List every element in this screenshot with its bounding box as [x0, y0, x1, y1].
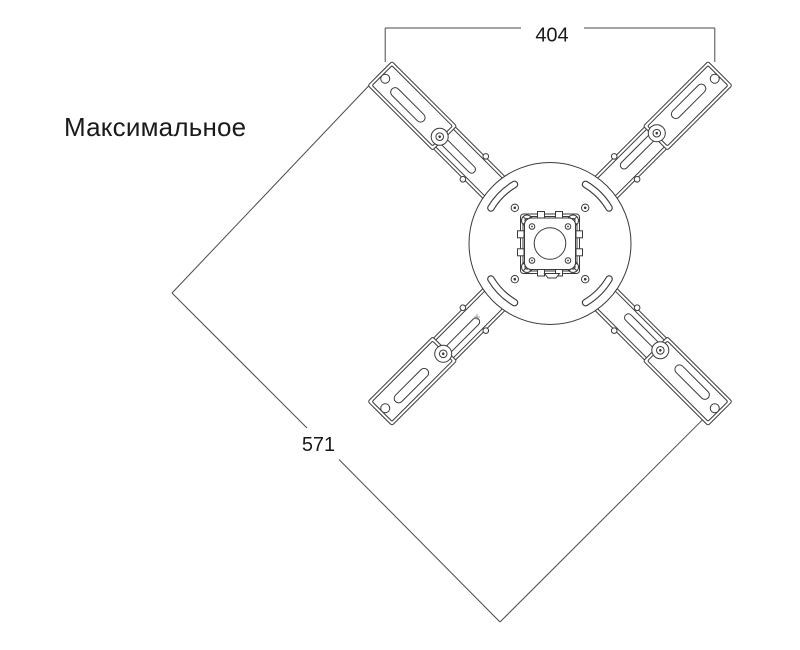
plate-screw-top-left: [511, 204, 518, 211]
dimension-404: 404: [385, 25, 715, 63]
dim-571-extension-left: [172, 86, 369, 294]
mount-technical-drawing: 571 404: [0, 0, 800, 650]
dim-571-value: 571: [302, 434, 335, 456]
interface-plate: [518, 212, 583, 279]
dim-571-line-upper: [172, 293, 307, 428]
dim-571-line-lower: [339, 460, 500, 623]
plate-screw-top-right: [582, 204, 589, 211]
page: Максимальное: [0, 0, 800, 650]
hub: [469, 163, 631, 325]
dim-404-value: 404: [535, 25, 568, 47]
plate-screw-bottom-right: [582, 276, 589, 283]
plate-screw-bottom-left: [511, 276, 518, 283]
dim-571-extension-right: [500, 412, 711, 622]
center-hole: [534, 228, 566, 260]
